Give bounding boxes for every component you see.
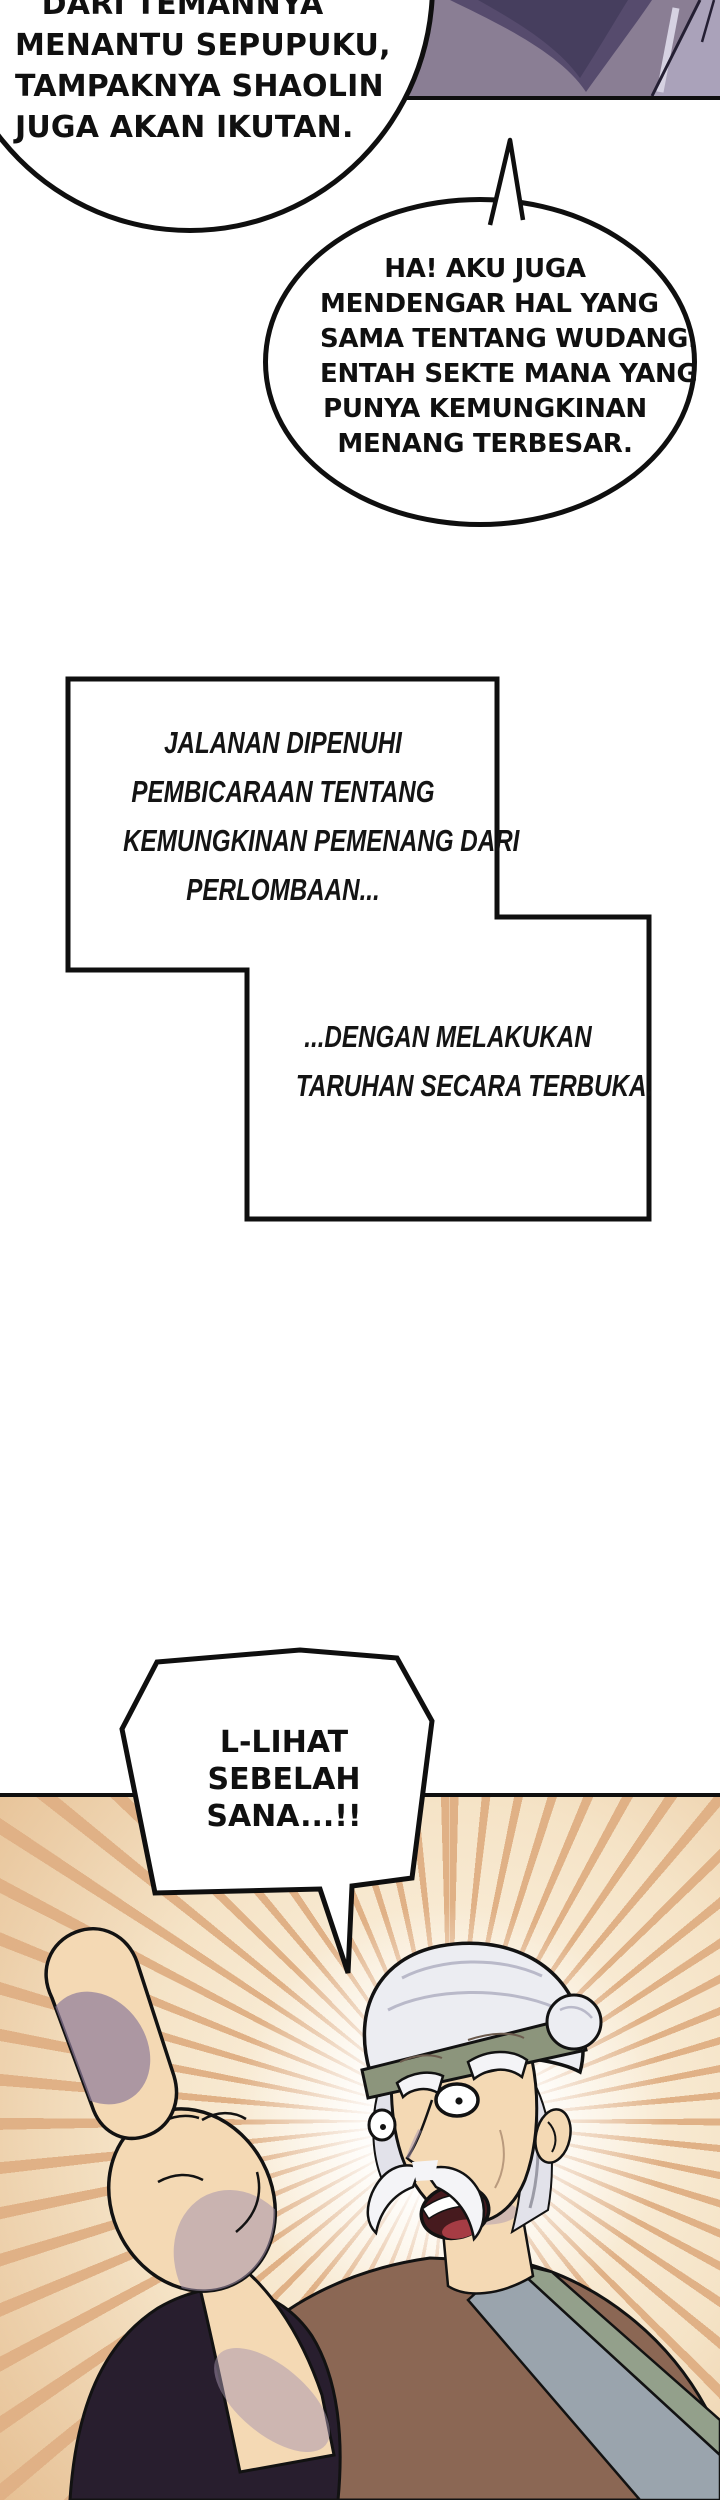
tail-shape — [490, 140, 523, 225]
comic-page: DARI TEMANNYA MENANTU SEPUPUKU, TAMPAKNY… — [0, 0, 720, 2500]
dialogue-line: PUNYA KEMUNGKINAN — [320, 392, 650, 427]
speech-bubble-2-tail — [475, 125, 535, 235]
caption-line: PEMBICARAAN TENTANG — [123, 767, 443, 816]
dialogue-line: SEBELAH — [154, 1761, 414, 1798]
caption-2-text: ...DENGAN MELAKUKAN TARUHAN SECARA TERBU… — [296, 1012, 600, 1110]
dialogue-line: DARI TEMANNYA — [15, 0, 350, 25]
dialogue-line: JUGA AKAN IKUTAN. — [15, 107, 350, 148]
caption-line: TARUHAN SECARA TERBUKA. — [296, 1061, 600, 1110]
dialogue-line: SAMA TENTANG WUDANG. — [320, 322, 650, 357]
right-pupil — [455, 2097, 462, 2104]
dialogue-line: L-LIHAT — [154, 1724, 414, 1761]
caption-line: PERLOMBAAN... — [123, 865, 443, 914]
speech-bubble-2-text: HA! AKU JUGA MENDENGAR HAL YANG SAMA TEN… — [320, 252, 650, 462]
dialogue-line: ENTAH SEKTE MANA YANG — [320, 357, 650, 392]
mustache-center — [412, 2160, 438, 2181]
caption-line: JALANAN DIPENUHI — [123, 718, 443, 767]
left-pupil — [380, 2124, 386, 2130]
dialogue-line: MENDENGAR HAL YANG — [320, 287, 650, 322]
wrap-bun — [547, 1995, 601, 2049]
dialogue-line: TAMPAKNYA SHAOLIN — [15, 66, 350, 107]
caption-1-text: JALANAN DIPENUHI PEMBICARAAN TENTANG KEM… — [123, 718, 443, 914]
mustache-left — [368, 2165, 420, 2233]
dialogue-line: SANA...!! — [154, 1798, 414, 1835]
speech-bubble-1-text: DARI TEMANNYA MENANTU SEPUPUKU, TAMPAKNY… — [15, 0, 350, 148]
speech-bubble-3-text: L-LIHAT SEBELAH SANA...!! — [154, 1724, 414, 1835]
caption-line: ...DENGAN MELAKUKAN — [296, 1012, 600, 1061]
dialogue-line: HA! AKU JUGA — [320, 252, 650, 287]
dialogue-line: MENANTU SEPUPUKU, — [15, 25, 350, 66]
caption-line: KEMUNGKINAN PEMENANG DARI — [123, 816, 443, 865]
dialogue-line: MENANG TERBESAR. — [320, 427, 650, 462]
